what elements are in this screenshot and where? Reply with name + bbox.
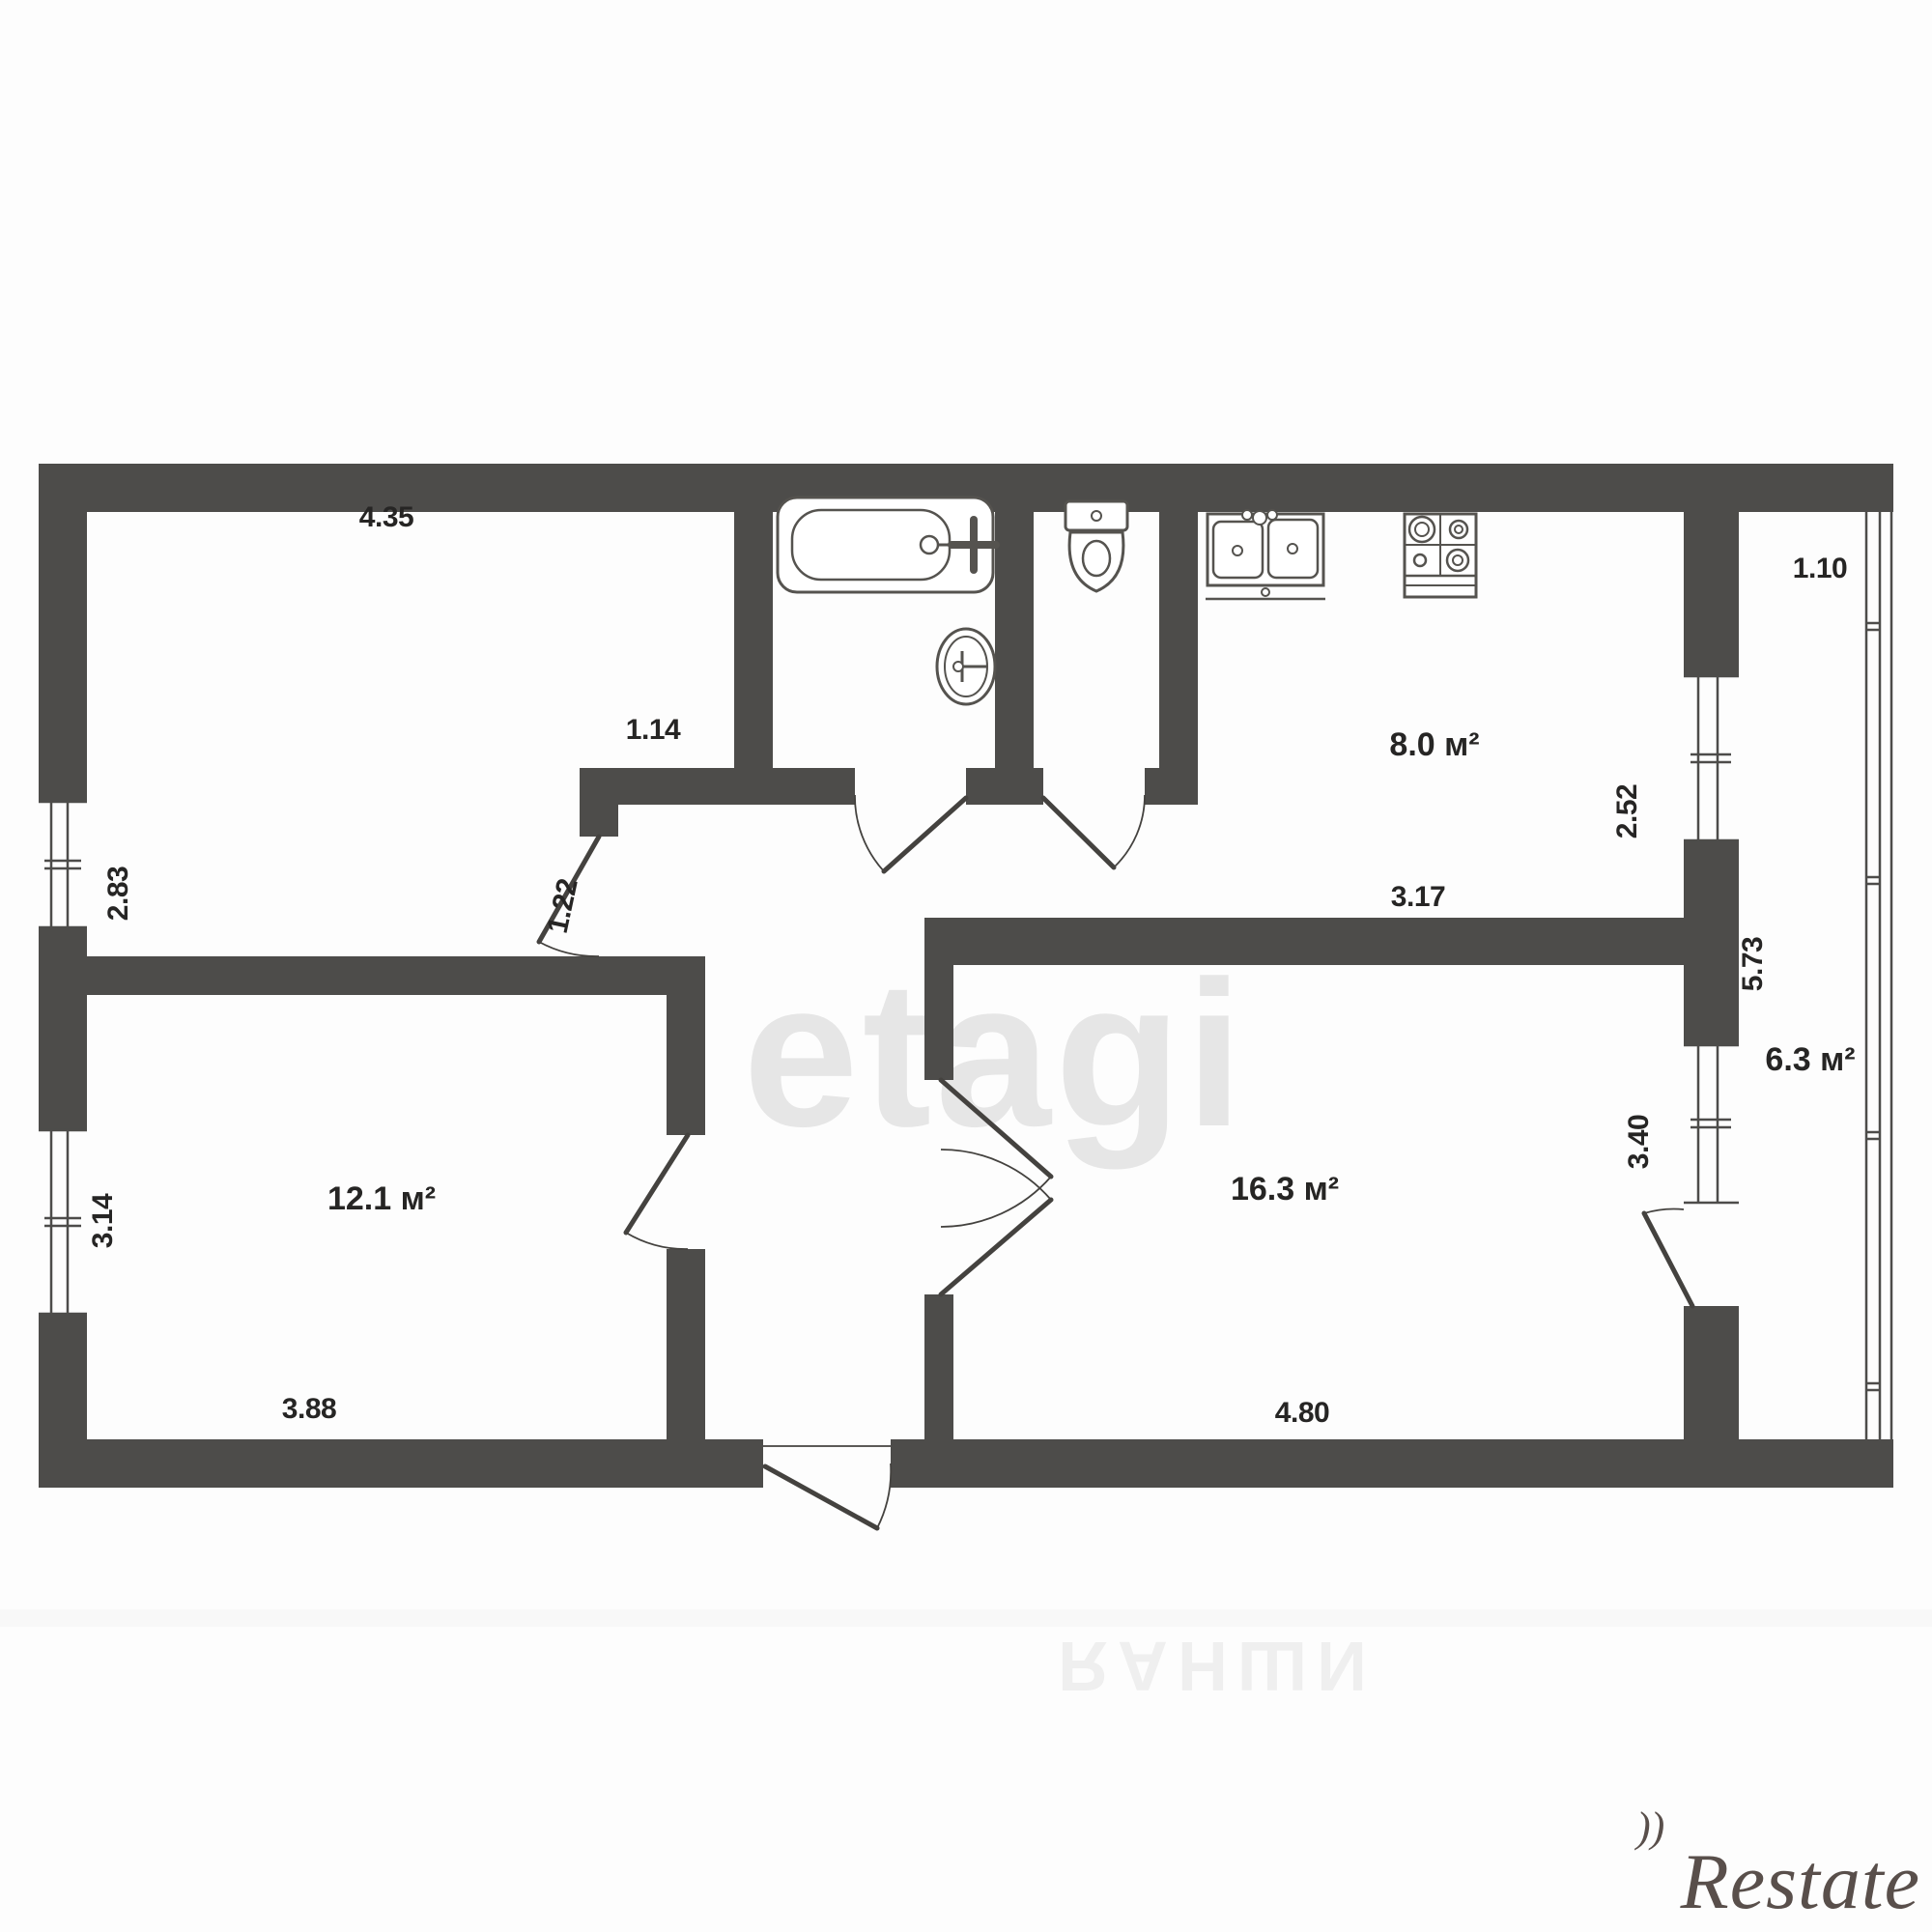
kitchen-sink-icon bbox=[1206, 510, 1325, 599]
floor-plan-page: etagi bbox=[0, 0, 1932, 1932]
wall-bottom-left bbox=[39, 1439, 763, 1488]
wall-room2-east-upper bbox=[667, 995, 705, 1135]
room2-door-icon bbox=[626, 1135, 688, 1249]
restate-logo: )) Restate bbox=[1634, 1804, 1920, 1925]
kitchen-depth-label: 2.52 bbox=[1611, 784, 1643, 838]
wall-kitchen-living-divider bbox=[924, 918, 1684, 965]
window-icon-living-balcony bbox=[1684, 1045, 1739, 1203]
window-icon-balcony-glazing bbox=[1866, 512, 1891, 1439]
wall-balcony-a bbox=[1684, 512, 1739, 676]
wall-room1-door-stub bbox=[580, 805, 618, 837]
wall-living-west-lower bbox=[924, 1294, 953, 1439]
living-width-label: 4.80 bbox=[1275, 1397, 1329, 1429]
wall-wc-west bbox=[995, 512, 1034, 805]
restate-logo-text: Restate bbox=[1680, 1837, 1920, 1925]
etagi-watermark-text: etagi bbox=[743, 937, 1247, 1170]
room2-area-label: 12.1 м² bbox=[327, 1180, 436, 1217]
wall-left-rooms-divider bbox=[39, 956, 705, 995]
wall-bathroom-west bbox=[734, 512, 773, 805]
balcony-length-label: 5.73 bbox=[1737, 937, 1769, 991]
kitchen-width-label: 3.17 bbox=[1391, 881, 1445, 913]
window-icon-room1 bbox=[39, 802, 87, 927]
stove-icon bbox=[1405, 514, 1476, 597]
nook-width-label: 1.14 bbox=[626, 714, 681, 746]
floor-plan: etagi bbox=[0, 0, 1932, 1932]
balcony-door-icon bbox=[1644, 1209, 1692, 1306]
balcony-area-label: 6.3 м² bbox=[1765, 1041, 1855, 1078]
wall-balcony-c bbox=[1684, 1306, 1739, 1439]
wall-wc-east bbox=[1159, 512, 1198, 805]
scan-band bbox=[0, 1609, 1932, 1627]
kitchen-area-label: 8.0 м² bbox=[1389, 726, 1479, 763]
wall-living-west-upper bbox=[924, 965, 953, 1080]
window-icon-kitchen-balcony bbox=[1684, 676, 1739, 840]
restate-logo-flourish: )) bbox=[1634, 1804, 1664, 1851]
wall-hall-north-a bbox=[580, 768, 855, 805]
window-icon-room2 bbox=[39, 1130, 87, 1314]
flipped-watermark-text: ИШНАЯ bbox=[1048, 1627, 1367, 1704]
entrance-door-icon bbox=[763, 1446, 891, 1528]
living-area-label: 16.3 м² bbox=[1231, 1171, 1339, 1207]
room2-height-label: 3.14 bbox=[87, 1193, 119, 1248]
living-height-label: 3.40 bbox=[1623, 1115, 1655, 1169]
balcony-width-label: 1.10 bbox=[1793, 553, 1847, 584]
room2-width-label: 3.88 bbox=[282, 1393, 336, 1425]
wc-door-icon bbox=[1043, 795, 1145, 867]
bathtub-icon bbox=[778, 497, 996, 592]
room1-width-label: 4.35 bbox=[359, 501, 413, 533]
wall-room2-east-lower bbox=[667, 1249, 705, 1439]
wash-basin-icon bbox=[937, 629, 995, 704]
etagi-watermark: etagi bbox=[743, 937, 1247, 1170]
toilet-icon bbox=[1065, 501, 1127, 591]
room1-door-width-label: 1.22 bbox=[542, 876, 584, 936]
room1-height-label: 2.83 bbox=[102, 867, 134, 921]
wall-bottom-right bbox=[891, 1439, 1893, 1488]
bathroom-door-icon bbox=[855, 795, 966, 871]
